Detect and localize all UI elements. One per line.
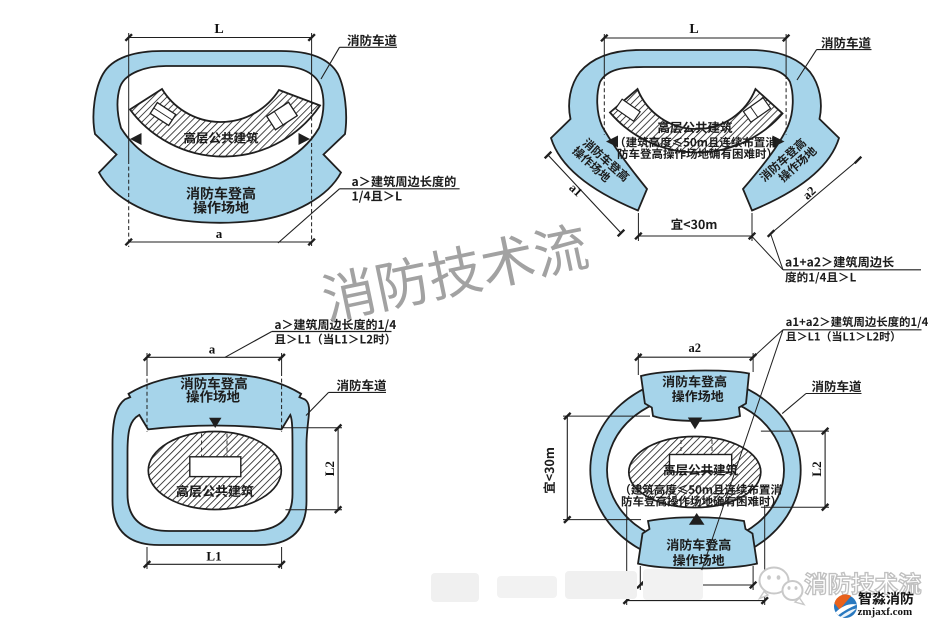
svg-text:a: a bbox=[216, 226, 223, 241]
svg-text:zmjaxf.com: zmjaxf.com bbox=[858, 606, 913, 618]
svg-text:L1: L1 bbox=[206, 549, 221, 564]
svg-text:a2: a2 bbox=[689, 341, 702, 355]
svg-text:L: L bbox=[689, 22, 698, 37]
svg-text:L: L bbox=[214, 22, 223, 37]
svg-text:L2: L2 bbox=[809, 461, 824, 476]
svg-text:L2: L2 bbox=[322, 461, 337, 476]
svg-text:a: a bbox=[209, 342, 216, 357]
